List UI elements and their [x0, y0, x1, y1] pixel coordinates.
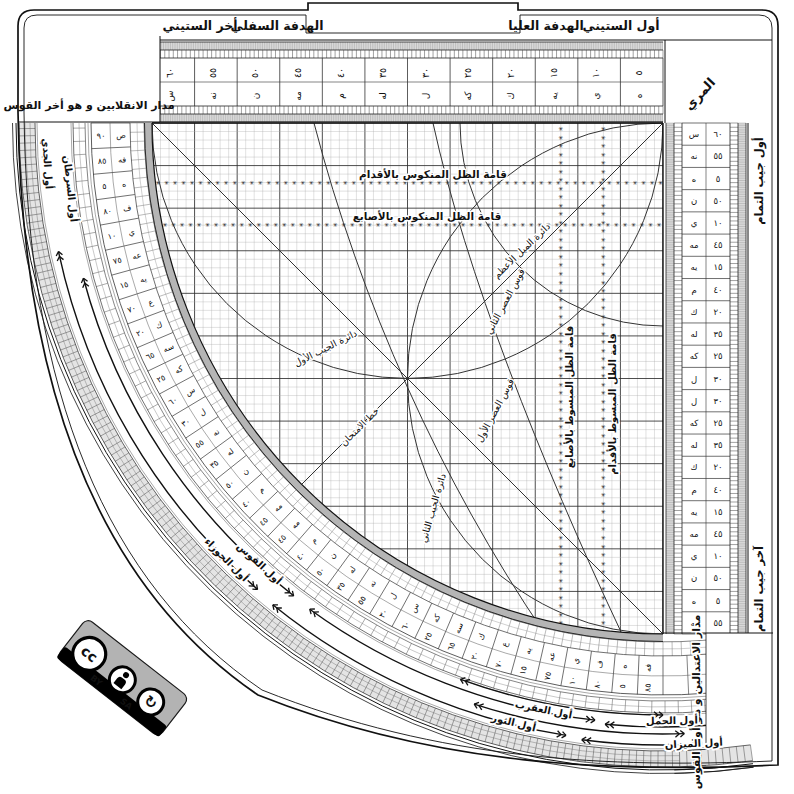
arc-numeral: ١٥ — [119, 280, 130, 291]
arc-numeral: ٧٥ — [112, 255, 123, 266]
right-scale-numeral: ٢٠ — [713, 307, 722, 317]
arc-numeral: ٢٠ — [135, 327, 146, 339]
label-mabsut-asabi: قامة الظل المبسوط بالأصابع — [563, 326, 576, 469]
asterisk-mark: ✳ — [558, 279, 563, 286]
asterisk-mark: ✳ — [181, 179, 186, 186]
arc-abjad: عه — [547, 651, 558, 662]
arc-abjad: ل — [198, 407, 208, 418]
asterisk-mark: ✳ — [224, 179, 229, 186]
arrow-head — [557, 735, 561, 738]
right-scale-abjad: ي — [691, 218, 698, 228]
top-scale-numeral: ١٥ — [548, 68, 559, 78]
right-scale-numeral: ٤٥ — [713, 529, 722, 539]
arc-numeral: ٧٠ — [493, 658, 504, 669]
asterisk-mark: ✳ — [558, 338, 563, 345]
arc-numeral: ٣٠ — [180, 417, 192, 429]
label-zodiac-hamal: أول الحمل — [646, 714, 698, 728]
arc-numeral: ٣٠ — [377, 608, 389, 620]
asterisk-mark: ✳ — [558, 202, 563, 209]
arc-numeral: ٢٥ — [422, 631, 434, 643]
right-scale-numeral: ٤٥ — [713, 240, 722, 250]
asterisk-mark: ✳ — [571, 221, 576, 228]
arc-numeral: ٦٠ — [400, 620, 412, 632]
arc-abjad: ف — [122, 203, 132, 213]
top-scale-abjad: مه — [293, 91, 303, 101]
asterisk-mark: ✳ — [495, 221, 500, 228]
label-hadafa-ulya: الهدفة العليا — [508, 18, 584, 33]
arrow-head — [81, 278, 83, 283]
asterisk-mark: ✳ — [658, 179, 663, 186]
arc-abjad: م — [256, 485, 266, 495]
asterisk-mark: ✳ — [601, 338, 606, 345]
arc-numeral: ٤٥ — [258, 515, 270, 527]
right-scale-abjad: مه — [689, 240, 698, 250]
right-scale-numeral: ٦٠ — [713, 129, 722, 139]
asterisk-mark: ✳ — [478, 221, 483, 228]
top-scale-abjad: ن — [250, 93, 260, 100]
top-scale-numeral: ٣٥ — [377, 68, 388, 78]
right-scale-numeral: ١٥ — [713, 262, 722, 272]
arc-abjad: نه — [211, 427, 221, 438]
asterisk-mark: ✳ — [444, 221, 449, 228]
asterisk-mark: ✳ — [601, 602, 606, 609]
right-scale-numeral: ٣٠ — [713, 396, 722, 406]
asterisk-mark: ✳ — [222, 221, 227, 228]
arc-numeral: ٥٥ — [356, 594, 368, 606]
arrow-head — [474, 702, 479, 704]
right-scale-numeral: ٤٠ — [713, 485, 722, 495]
asterisk-mark: ✳ — [601, 304, 606, 311]
asterisk-mark: ✳ — [601, 347, 606, 354]
asterisk-mark: ✳ — [558, 313, 563, 320]
arc-abjad: فه — [644, 663, 653, 671]
asterisk-mark: ✳ — [601, 398, 606, 405]
arc-abjad: كه — [173, 364, 184, 376]
asterisk-mark: ✳ — [558, 159, 563, 166]
asterisk-mark: ✳ — [300, 179, 305, 186]
right-scale-abjad: ل — [691, 396, 697, 406]
asterisk-mark: ✳ — [343, 179, 348, 186]
asterisk-mark: ✳ — [558, 551, 563, 558]
top-scale-numeral: ٥٥ — [207, 68, 218, 78]
arc-abjad: م — [309, 536, 319, 546]
asterisk-mark: ✳ — [601, 466, 606, 473]
asterisk-mark: ✳ — [558, 457, 563, 464]
right-scale-abjad: يه — [691, 507, 699, 517]
asterisk-mark: ✳ — [558, 287, 563, 294]
asterisk-mark: ✳ — [266, 179, 271, 186]
right-scale-abjad: س — [689, 129, 699, 139]
arc-abjad: ن — [327, 551, 338, 561]
asterisk-mark: ✳ — [558, 449, 563, 456]
asterisk-mark: ✳ — [558, 227, 563, 234]
asterisk-mark: ✳ — [601, 525, 606, 532]
right-scale-numeral: ١٠ — [713, 551, 722, 561]
top-scale-numeral: ٦٠ — [164, 68, 175, 78]
asterisk-mark: ✳ — [601, 508, 606, 515]
right-scale-abjad: ه — [692, 174, 696, 184]
asterisk-mark: ✳ — [558, 508, 563, 515]
asterisk-mark: ✳ — [558, 381, 563, 388]
right-scale-numeral: ٢٥ — [713, 351, 722, 361]
asterisk-mark: ✳ — [558, 134, 563, 141]
asterisk-mark: ✳ — [197, 221, 202, 228]
top-scale-abjad: نه — [208, 92, 218, 99]
asterisk-mark: ✳ — [601, 261, 606, 268]
label-asr-thani: قوس العصر الثاني — [483, 267, 527, 336]
asterisk-mark: ✳ — [283, 179, 288, 186]
arc-cell-divider — [96, 195, 135, 200]
asterisk-mark: ✳ — [558, 330, 563, 337]
top-scale-numeral: ٣٠ — [420, 68, 431, 78]
asterisk-mark: ✳ — [265, 221, 270, 228]
asterisk-mark: ✳ — [333, 221, 338, 228]
asterisk-mark: ✳ — [558, 543, 563, 550]
asterisk-mark: ✳ — [558, 440, 563, 447]
asterisk-mark: ✳ — [558, 594, 563, 601]
right-scale-abjad: ه — [692, 596, 696, 606]
asterisk-mark: ✳ — [558, 415, 563, 422]
asterisk-mark: ✳ — [601, 210, 606, 217]
asterisk-mark: ✳ — [558, 577, 563, 584]
label-mankus-aqdam: قامة الظل المنكوس بالأقدام — [359, 168, 507, 181]
arc-cell-divider — [93, 171, 132, 174]
asterisk-mark: ✳ — [558, 176, 563, 183]
asterisk-mark: ✳ — [601, 219, 606, 226]
right-scale-numeral: ٥٠ — [713, 196, 722, 206]
right-scale-numeral: ٥٥ — [713, 151, 722, 161]
arc-numeral: ٤٥ — [276, 533, 288, 545]
quadrant-svg: ✳✳✳✳✳✳✳✳✳✳✳✳✳✳✳✳✳✳✳✳✳✳✳✳✳✳✳✳✳✳✳✳✳✳✳✳✳✳✳✳… — [0, 0, 794, 794]
arrow-head — [56, 251, 58, 256]
arc-abjad: ك — [476, 632, 487, 641]
top-scale-abjad: ي — [591, 92, 601, 99]
arc-abjad: سه — [453, 621, 466, 635]
top-scale-abjad: ك — [506, 92, 516, 99]
asterisk-mark: ✳ — [558, 270, 563, 277]
asterisk-mark: ✳ — [601, 440, 606, 447]
asterisk-mark: ✳ — [324, 221, 329, 228]
arc-numeral: ٢٠ — [469, 650, 480, 661]
asterisk-mark: ✳ — [607, 179, 612, 186]
asterisk-mark: ✳ — [631, 221, 636, 228]
arc-abjad: س — [184, 385, 197, 398]
arc-abjad: يه — [523, 647, 533, 656]
asterisk-mark: ✳ — [214, 221, 219, 228]
right-scale-abjad: م — [691, 285, 696, 295]
asterisk-mark: ✳ — [558, 304, 563, 311]
arc-abjad: ف — [595, 660, 605, 669]
asterisk-mark: ✳ — [601, 560, 606, 567]
asterisk-mark: ✳ — [384, 221, 389, 228]
arc-abjad: ك — [154, 320, 163, 331]
arc-numeral: ٨٠ — [103, 206, 113, 216]
asterisk-mark: ✳ — [317, 179, 322, 186]
asterisk-mark: ✳ — [601, 185, 606, 192]
arc-numeral: ٥٠ — [314, 565, 326, 577]
arc-numeral: ٥ — [618, 684, 627, 689]
label-cos-start: أول جيب التمام — [751, 137, 767, 225]
asterisk-mark: ✳ — [601, 372, 606, 379]
asterisk-mark: ✳ — [503, 221, 508, 228]
asterisk-mark: ✳ — [309, 179, 314, 186]
arc-numeral: ٧٠ — [126, 304, 137, 315]
arc-abjad: ع — [147, 298, 155, 308]
asterisk-mark: ✳ — [601, 432, 606, 439]
asterisk-mark: ✳ — [282, 221, 287, 228]
asterisk-mark: ✳ — [601, 270, 606, 277]
right-scale-abjad: ن — [691, 573, 697, 583]
asterisk-mark: ✳ — [231, 221, 236, 228]
asterisk-mark: ✳ — [558, 261, 563, 268]
arc-numeral: ٦٥ — [145, 350, 157, 362]
asterisk-mark: ✳ — [601, 330, 606, 337]
top-scale-numeral: ٤٠ — [335, 68, 346, 78]
arc-abjad: ن — [240, 466, 250, 477]
asterisk-mark: ✳ — [292, 179, 297, 186]
asterisk-mark: ✳ — [232, 179, 237, 186]
asterisk-mark: ✳ — [601, 364, 606, 371]
asterisk-mark: ✳ — [558, 210, 563, 217]
arc-numeral: ٧٥ — [543, 671, 554, 681]
right-scale-abjad: نه — [691, 151, 698, 161]
asterisk-mark: ✳ — [622, 221, 627, 228]
asterisk-mark: ✳ — [558, 602, 563, 609]
asterisk-mark: ✳ — [588, 221, 593, 228]
asterisk-mark: ✳ — [558, 389, 563, 396]
asterisk-mark: ✳ — [601, 543, 606, 550]
asterisk-mark: ✳ — [375, 221, 380, 228]
arrow-head — [479, 704, 484, 706]
asterisk-mark: ✳ — [299, 221, 304, 228]
asterisk-mark: ✳ — [601, 577, 606, 584]
top-scale-abjad: كه — [463, 91, 473, 101]
right-scale-abjad: كه — [690, 418, 700, 428]
label-mabsut-aqdam: قامة الظل المبسوط بالأقدام — [606, 333, 619, 475]
asterisk-mark: ✳ — [241, 179, 246, 186]
arc-abjad: ي — [571, 657, 581, 665]
label-mankus-asabi: قامة الظل المنكوس بالأصابع — [353, 210, 502, 223]
asterisk-mark: ✳ — [615, 179, 620, 186]
arrow-head — [83, 283, 85, 288]
arc-numeral: ١٠ — [107, 231, 117, 242]
label-akhir-sittini: أخر الستيني — [162, 17, 237, 33]
top-scale-abjad: ل — [421, 93, 431, 100]
asterisk-mark: ✳ — [558, 168, 563, 175]
asterisk-mark: ✳ — [558, 347, 563, 354]
asterisk-mark: ✳ — [632, 179, 637, 186]
asterisk-mark: ✳ — [641, 179, 646, 186]
asterisk-mark: ✳ — [573, 179, 578, 186]
asterisk-mark: ✳ — [601, 202, 606, 209]
asterisk-mark: ✳ — [307, 221, 312, 228]
asterisk-mark: ✳ — [601, 483, 606, 490]
asterisk-mark: ✳ — [558, 568, 563, 575]
arc-abjad: له — [347, 565, 358, 576]
arc-numeral: ٩٠ — [97, 132, 106, 141]
asterisk-mark: ✳ — [273, 221, 278, 228]
top-scale-numeral: ٤٥ — [292, 68, 303, 78]
right-scale-numeral: ٣٥ — [713, 329, 722, 339]
asterisk-mark: ✳ — [435, 221, 440, 228]
asterisk-mark: ✳ — [601, 389, 606, 396]
asterisk-mark: ✳ — [601, 244, 606, 251]
top-scale-numeral: ٥ — [633, 70, 644, 75]
asterisk-mark: ✳ — [624, 179, 629, 186]
asterisk-mark: ✳ — [529, 221, 534, 228]
arc-numeral: ٣٥ — [335, 580, 347, 592]
arc-abjad: ي — [128, 227, 136, 237]
arc-numeral: ٤٠ — [240, 497, 252, 509]
label-hadafa-sufla: الهدفة السفلي — [230, 18, 323, 33]
arc-numeral: ٤٠ — [295, 550, 307, 562]
right-scale-abjad: يه — [691, 262, 699, 272]
right-scale-numeral: ٣٠ — [713, 374, 722, 384]
asterisk-mark: ✳ — [558, 355, 563, 362]
hatch-strip — [738, 123, 746, 634]
arc-numeral: ١٥ — [518, 665, 529, 676]
asterisk-mark: ✳ — [558, 585, 563, 592]
asterisk-mark: ✳ — [601, 142, 606, 149]
arc-cell-divider — [92, 147, 131, 149]
right-scale-numeral: ٥ — [716, 174, 721, 184]
right-scale-numeral: ١٥ — [713, 507, 722, 517]
top-scale-numeral: ٢٠ — [505, 68, 516, 78]
label-muri: المري — [681, 75, 718, 113]
right-scale-numeral: ٤٠ — [713, 285, 722, 295]
asterisk-mark: ✳ — [190, 179, 195, 186]
arc-numeral: ٣٥ — [208, 458, 220, 470]
asterisk-mark: ✳ — [558, 372, 563, 379]
asterisk-mark: ✳ — [334, 179, 339, 186]
arc-numeral: ٦٥ — [446, 641, 458, 652]
right-scale-abjad: مه — [689, 529, 698, 539]
asterisk-mark: ✳ — [601, 619, 606, 626]
asterisk-mark: ✳ — [409, 221, 414, 228]
arc-numeral: ٦٠ — [167, 395, 179, 407]
asterisk-mark: ✳ — [513, 179, 518, 186]
asterisk-mark: ✳ — [558, 125, 563, 132]
asterisk-mark: ✳ — [558, 474, 563, 481]
hatch-strip — [152, 114, 663, 122]
asterisk-mark: ✳ — [601, 517, 606, 524]
asterisk-mark: ✳ — [656, 221, 661, 228]
label-awwal-sittini: أول الستيني — [583, 17, 660, 33]
top-scale-abjad: له — [378, 92, 388, 100]
asterisk-mark: ✳ — [601, 500, 606, 507]
asterisk-mark: ✳ — [601, 491, 606, 498]
asterisk-mark: ✳ — [558, 406, 563, 413]
asterisk-mark: ✳ — [558, 432, 563, 439]
label-cos-end: آخر جيب التمام — [752, 545, 766, 632]
asterisk-mark: ✳ — [512, 221, 517, 228]
arc-abjad: مه — [272, 501, 284, 513]
asterisk-mark: ✳ — [601, 449, 606, 456]
cc-license-badge[interactable]: cc↻BYSA — [56, 618, 189, 737]
top-scale-abjad: يه — [549, 92, 559, 100]
arc-cell-divider — [612, 654, 615, 693]
asterisk-mark: ✳ — [601, 253, 606, 260]
arc-numeral: ٥ — [102, 182, 107, 191]
asterisk-mark: ✳ — [469, 221, 474, 228]
right-scale-numeral: ٥٥ — [713, 618, 722, 628]
arc-abjad: له — [225, 447, 236, 458]
asterisk-mark: ✳ — [601, 236, 606, 243]
label-zodiac-jadi: أول الجدي — [39, 138, 55, 190]
right-scale-abjad: ي — [691, 551, 698, 561]
asterisk-mark: ✳ — [558, 466, 563, 473]
asterisk-mark: ✳ — [601, 474, 606, 481]
asterisk-mark: ✳ — [601, 381, 606, 388]
arc-cell-divider — [687, 655, 689, 694]
asterisk-mark: ✳ — [601, 551, 606, 558]
asterisk-mark: ✳ — [558, 185, 563, 192]
right-scale-numeral: ٥ — [716, 596, 721, 606]
asterisk-mark: ✳ — [564, 179, 569, 186]
asterisk-mark: ✳ — [601, 415, 606, 422]
ring-arc — [110, 123, 740, 676]
asterisk-mark: ✳ — [180, 221, 185, 228]
arc-abjad: فه — [118, 155, 127, 165]
right-scale-abjad: له — [690, 440, 697, 450]
asterisk-mark: ✳ — [558, 244, 563, 251]
asterisk-mark: ✳ — [198, 179, 203, 186]
arc-abjad: يه — [139, 274, 148, 284]
right-scale-numeral: ٣٥ — [713, 440, 722, 450]
right-scale-numeral: ٢٠ — [713, 462, 722, 472]
asterisk-mark: ✳ — [558, 193, 563, 200]
asterisk-mark: ✳ — [461, 221, 466, 228]
asterisk-mark: ✳ — [601, 168, 606, 175]
label-solstice-corner: مدار الانقلابين و هو أخر القوس — [3, 98, 174, 112]
right-scale-abjad: ن — [691, 196, 697, 206]
asterisk-mark: ✳ — [601, 457, 606, 464]
asterisk-mark: ✳ — [601, 534, 606, 541]
asterisk-mark: ✳ — [601, 321, 606, 328]
asterisk-mark: ✳ — [401, 221, 406, 228]
asterisk-mark: ✳ — [558, 560, 563, 567]
arc-abjad: كه — [431, 613, 443, 624]
asterisk-mark: ✳ — [427, 221, 432, 228]
asterisk-mark: ✳ — [539, 179, 544, 186]
asterisk-mark: ✳ — [258, 179, 263, 186]
sine-quadrant-diagram: ✳✳✳✳✳✳✳✳✳✳✳✳✳✳✳✳✳✳✳✳✳✳✳✳✳✳✳✳✳✳✳✳✳✳✳✳✳✳✳✳… — [0, 0, 794, 794]
asterisk-mark: ✳ — [601, 287, 606, 294]
asterisk-mark: ✳ — [249, 179, 254, 186]
asterisk-mark: ✳ — [558, 236, 563, 243]
asterisk-mark: ✳ — [601, 134, 606, 141]
asterisk-mark: ✳ — [601, 193, 606, 200]
arc-abjad: نه — [367, 578, 378, 588]
arc-numeral: ١٠ — [567, 676, 577, 686]
asterisk-mark: ✳ — [275, 179, 280, 186]
right-scale-abjad: ك — [690, 462, 697, 472]
asterisk-mark: ✳ — [601, 159, 606, 166]
asterisk-mark: ✳ — [530, 179, 535, 186]
arc-abjad: ه — [619, 664, 628, 669]
asterisk-mark: ✳ — [547, 179, 552, 186]
asterisk-mark: ✳ — [601, 296, 606, 303]
right-scale-numeral: ٥٠ — [713, 573, 722, 583]
right-scale-numeral: ١٠ — [713, 218, 722, 228]
asterisk-mark: ✳ — [601, 406, 606, 413]
asterisk-mark: ✳ — [601, 355, 606, 362]
arrow-head — [253, 581, 254, 586]
asterisk-mark: ✳ — [522, 179, 527, 186]
asterisk-mark: ✳ — [601, 423, 606, 430]
arc-numeral: ٨٠ — [593, 679, 603, 689]
arc-abjad: ص — [116, 131, 126, 140]
